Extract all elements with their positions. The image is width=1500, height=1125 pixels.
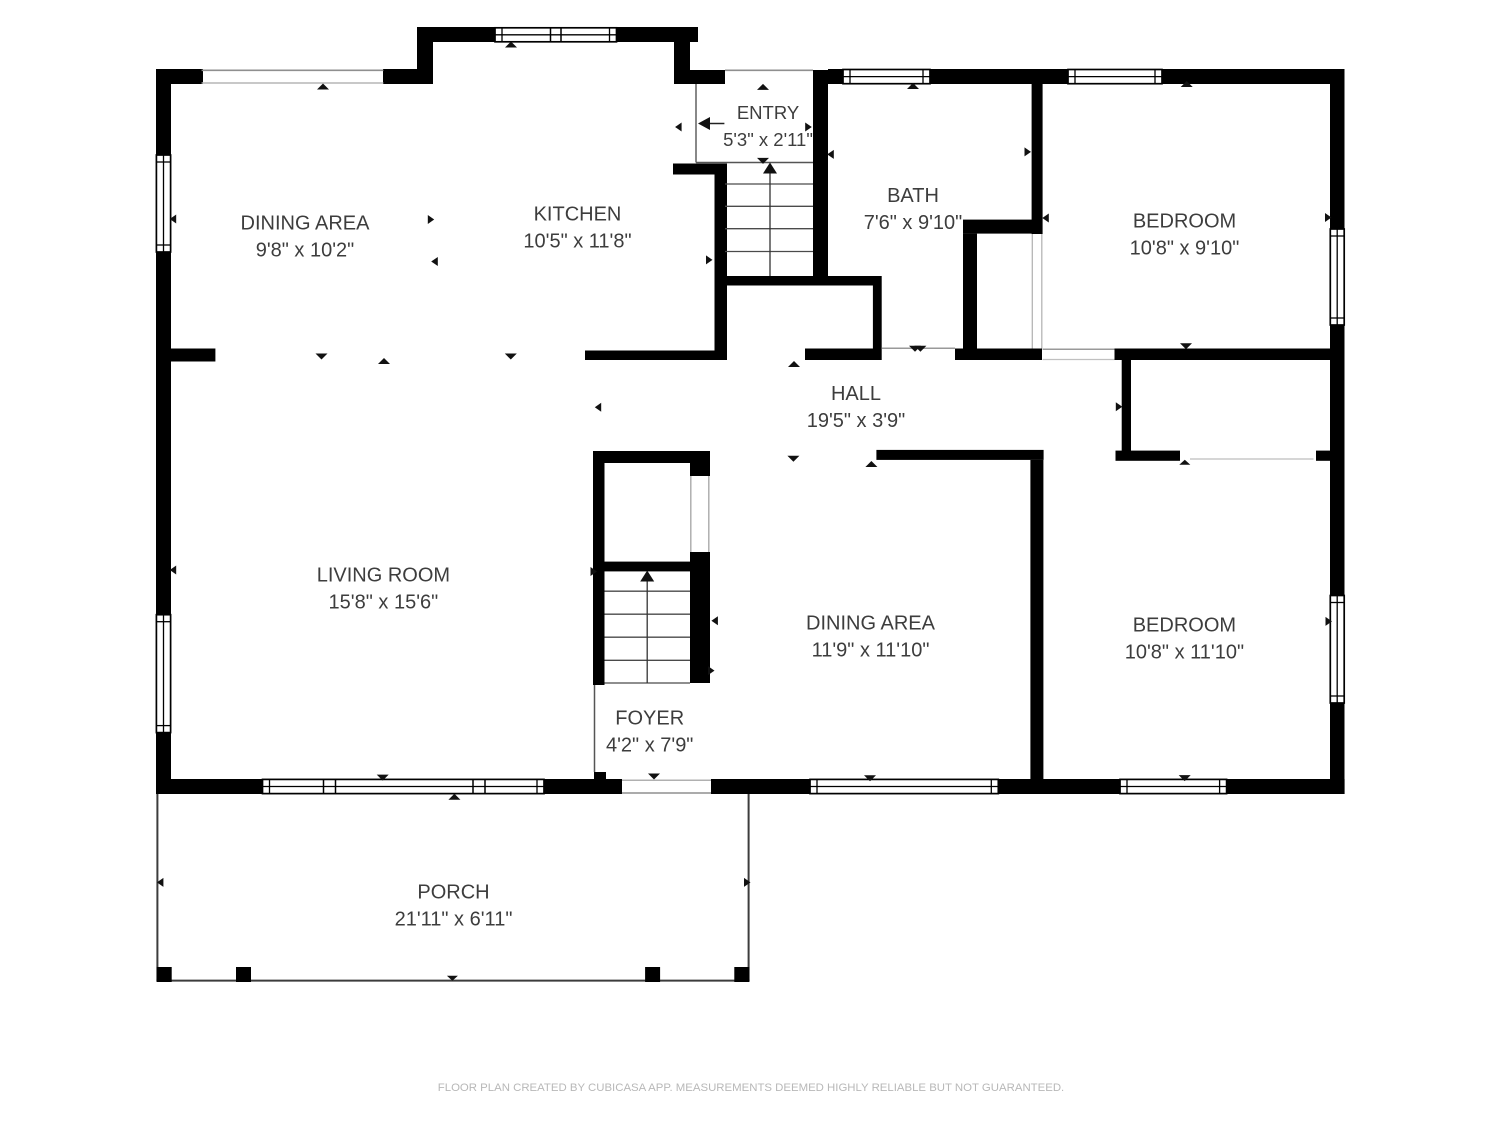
svg-text:KITCHEN: KITCHEN [534, 204, 622, 226]
svg-text:5'3" x 2'11": 5'3" x 2'11" [723, 129, 813, 150]
svg-text:9'8" x 10'2": 9'8" x 10'2" [256, 240, 355, 262]
svg-text:LIVING ROOM: LIVING ROOM [317, 565, 450, 587]
svg-text:21'11" x 6'11": 21'11" x 6'11" [395, 909, 513, 931]
svg-text:BEDROOM: BEDROOM [1133, 614, 1236, 636]
svg-text:4'2" x 7'9": 4'2" x 7'9" [606, 734, 693, 756]
svg-text:11'9" x 11'10": 11'9" x 11'10" [812, 639, 930, 661]
svg-text:PORCH: PORCH [417, 882, 489, 904]
svg-text:10'8" x 9'10": 10'8" x 9'10" [1130, 237, 1240, 259]
svg-text:ENTRY: ENTRY [737, 102, 799, 123]
svg-text:BATH: BATH [887, 185, 939, 207]
svg-text:BEDROOM: BEDROOM [1133, 210, 1236, 232]
svg-text:DINING AREA: DINING AREA [241, 213, 371, 235]
svg-text:10'5" x 11'8": 10'5" x 11'8" [523, 231, 631, 253]
svg-text:19'5" x 3'9": 19'5" x 3'9" [807, 410, 906, 432]
svg-text:FLOOR PLAN CREATED BY CUBICASA: FLOOR PLAN CREATED BY CUBICASA APP. MEAS… [438, 1082, 1064, 1094]
svg-text:FOYER: FOYER [615, 707, 684, 729]
svg-text:10'8" x 11'10": 10'8" x 11'10" [1125, 641, 1244, 663]
svg-text:7'6" x 9'10": 7'6" x 9'10" [864, 212, 963, 234]
svg-text:DINING AREA: DINING AREA [806, 612, 936, 634]
svg-text:HALL: HALL [831, 383, 881, 405]
svg-text:15'8" x 15'6": 15'8" x 15'6" [329, 592, 439, 614]
